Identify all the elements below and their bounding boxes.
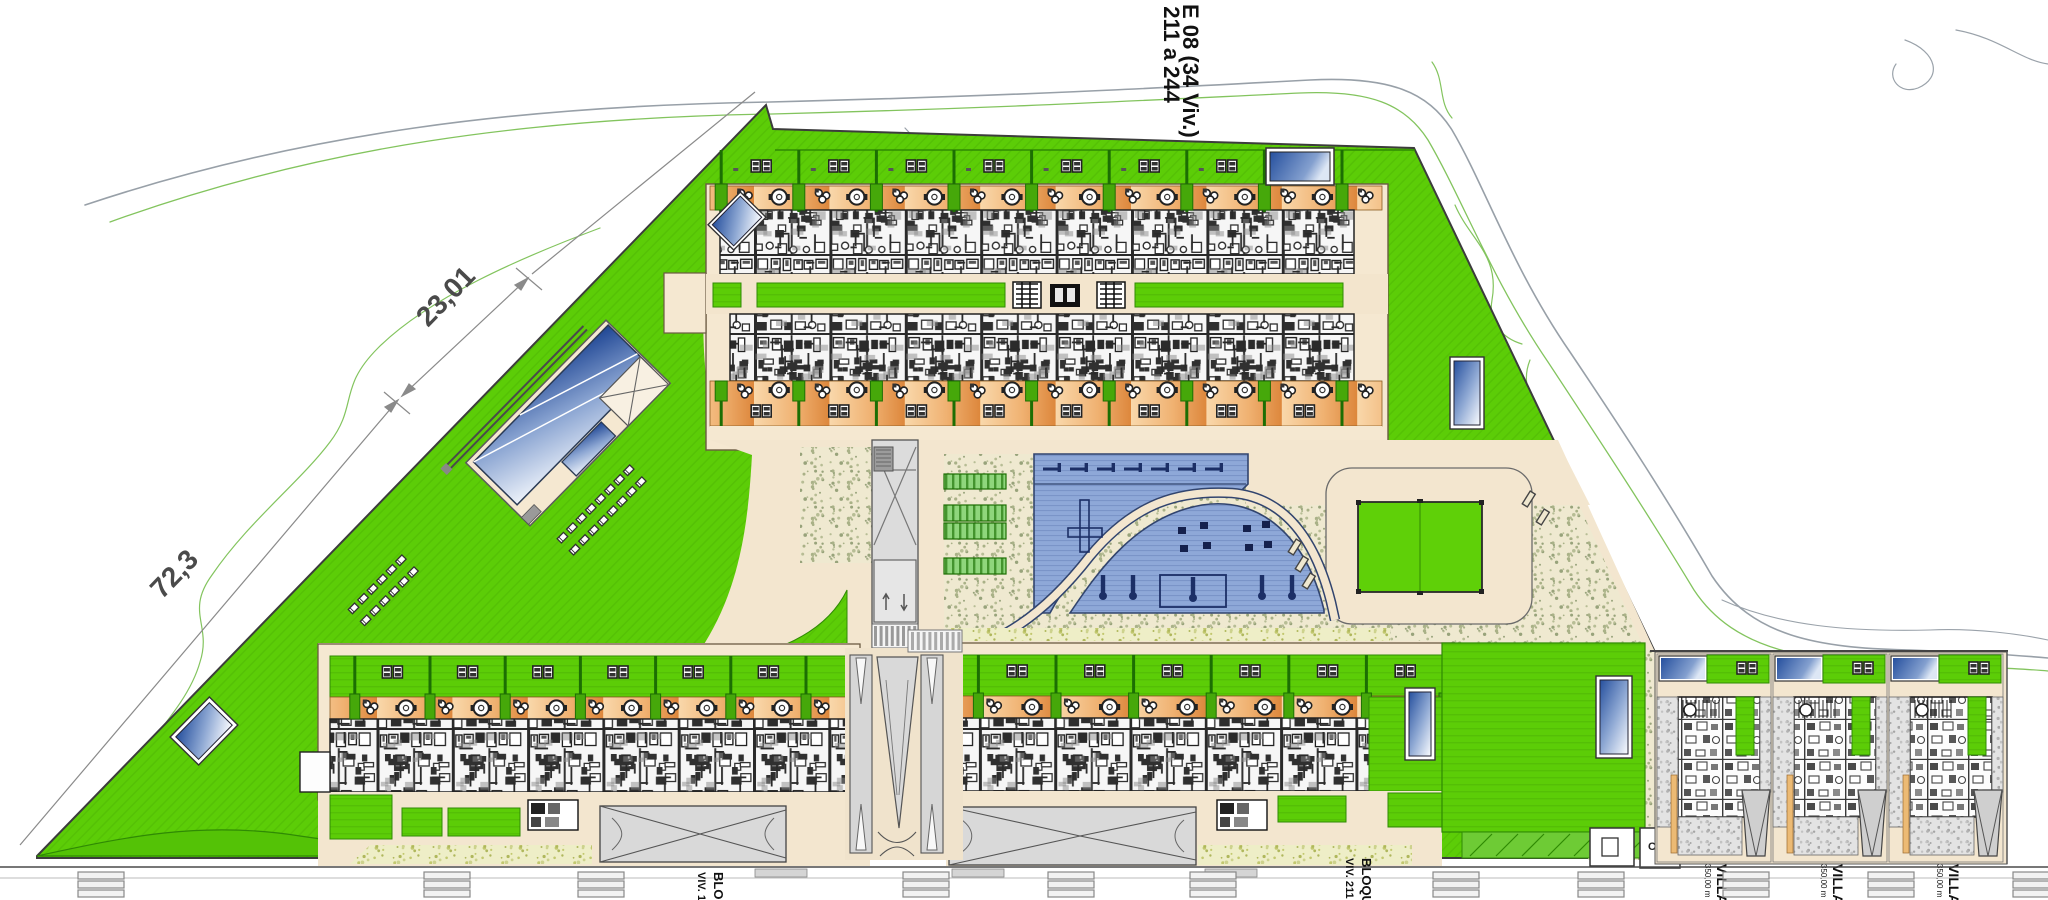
svg-text:BLOQUE 07: BLOQUE 07 [711,872,726,900]
svg-text:VILLA: VILLA [1830,864,1846,900]
svg-text:350,00 m: 350,00 m [1819,864,1828,898]
svg-text:BLOQUE 08: BLOQUE 08 [1359,858,1374,900]
svg-text:VIV. 183 a 2: VIV. 183 a 2 [695,872,707,900]
svg-text:VIV. 211 a 2: VIV. 211 a 2 [1343,858,1355,900]
svg-text:. 211 a 244: . 211 a 244 [1159,0,1184,104]
svg-text:350,00 m: 350,00 m [1935,864,1944,898]
svg-text:350,00 m: 350,00 m [1703,864,1712,898]
svg-text:VILLA: VILLA [1946,864,1962,900]
